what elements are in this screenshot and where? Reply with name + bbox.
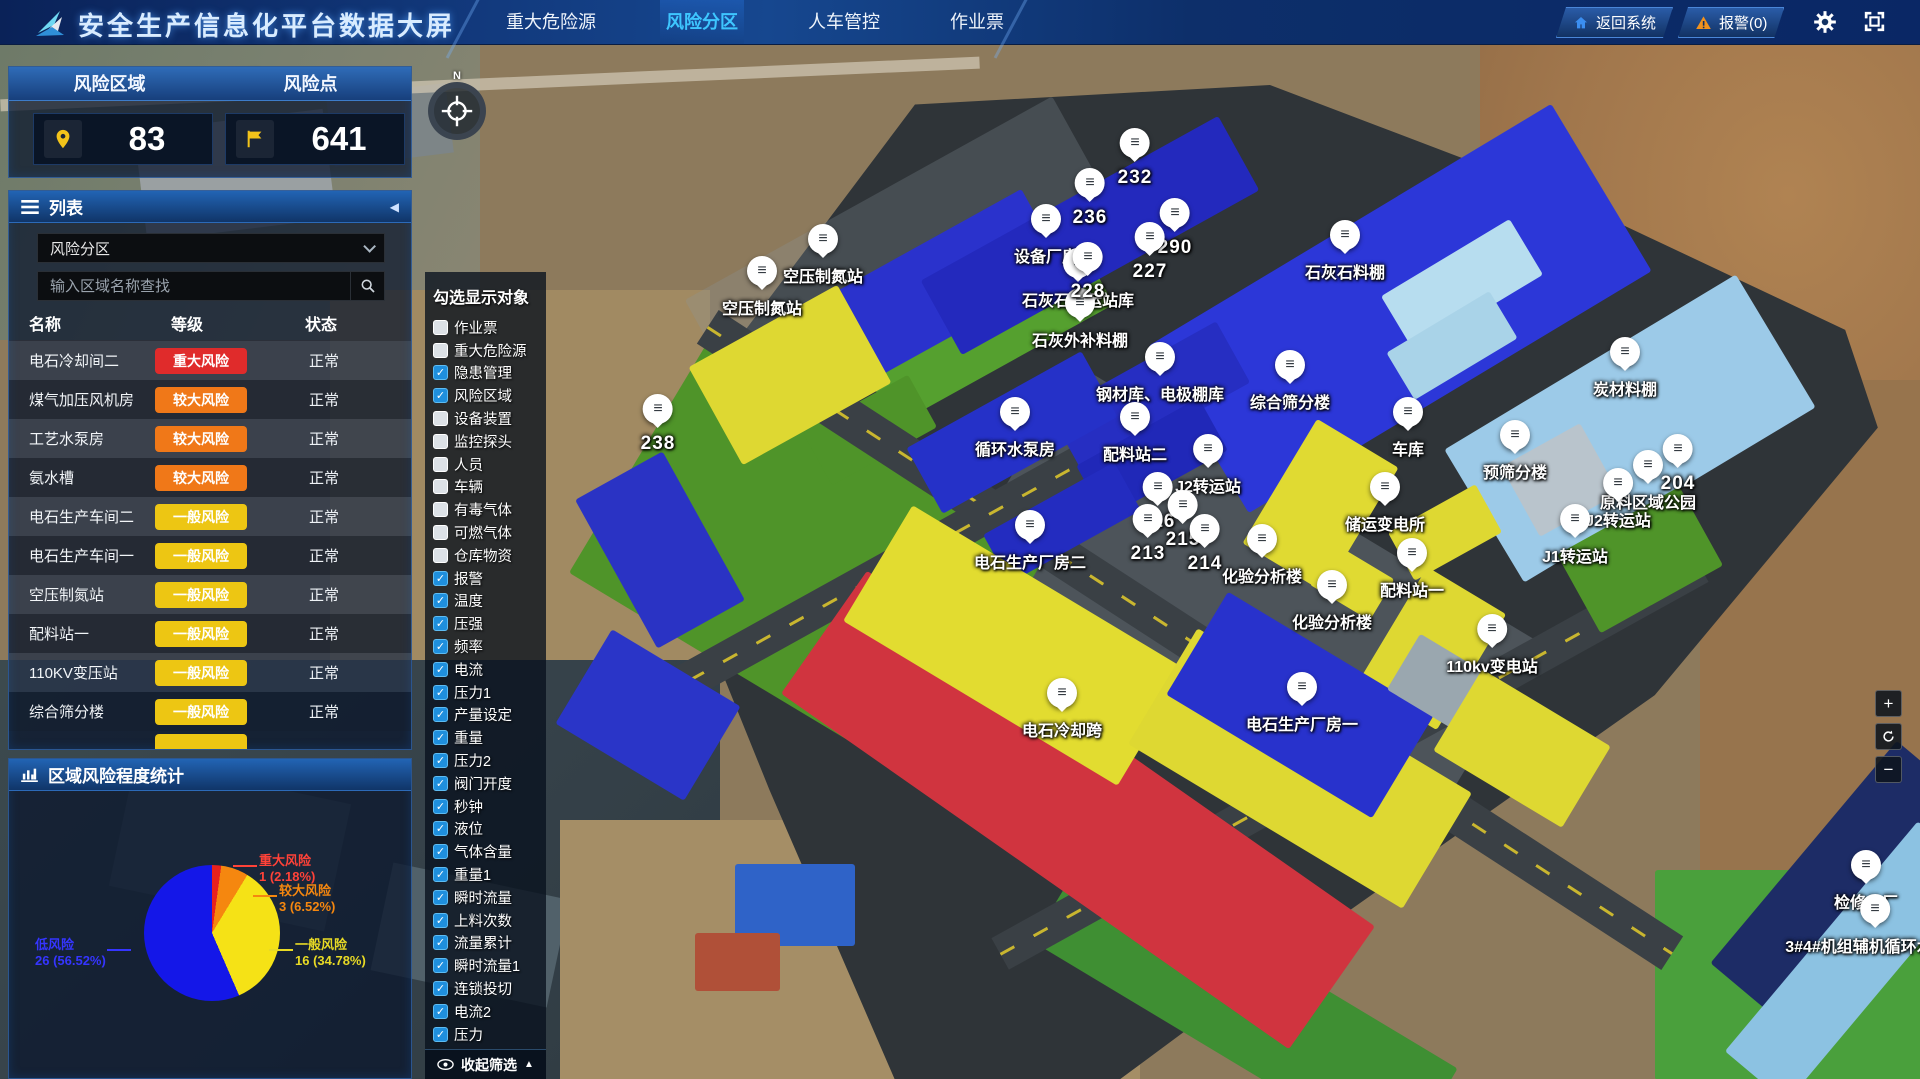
checkbox-checked[interactable]: ✓: [433, 1004, 448, 1019]
filter-item-label: 产量设定: [454, 704, 512, 725]
hamburger-icon: [21, 200, 39, 214]
search-icon[interactable]: [350, 272, 384, 300]
map-building-marker[interactable]: ≡3#4#机组辅机循环水泵房: [1785, 894, 1920, 957]
alarm-button[interactable]: 报警(0): [1678, 7, 1784, 38]
layer-stack-pin-icon: ≡: [1393, 397, 1423, 427]
zoom-out-button[interactable]: −: [1875, 756, 1902, 783]
checkbox-unchecked[interactable]: [433, 320, 448, 335]
reset-view-button[interactable]: [1875, 723, 1902, 750]
filter-panel-title: 勾选显示对象: [425, 272, 546, 316]
filter-item[interactable]: ✓连锁投切: [433, 977, 546, 1000]
filter-item-label: 有毒气体: [454, 499, 512, 520]
back-to-system-button[interactable]: 返回系统: [1556, 7, 1673, 38]
risk-degree-panel: 区域风险程度统计 重大风险1 (2.18%)较大风险3 (6.52%)一般风险1…: [8, 758, 412, 1079]
row-level-badge: 一般风险: [155, 699, 247, 725]
marker-label: 炭材料棚: [1593, 376, 1657, 400]
filter-item[interactable]: ✓重量: [433, 726, 546, 749]
pie-slice-label: 一般风险16 (34.78%): [295, 937, 366, 969]
panel-collapse-icon[interactable]: ◀: [390, 200, 399, 214]
risk-point-count: 641: [274, 120, 404, 158]
row-level-badge: 一般风险: [155, 504, 247, 530]
filter-item[interactable]: ✓秒钟: [433, 795, 546, 818]
checkbox-checked[interactable]: ✓: [433, 935, 448, 950]
map-number-marker[interactable]: ≡232: [1118, 128, 1153, 189]
layer-stack-pin-icon: ≡: [1120, 128, 1150, 158]
checkbox-unchecked[interactable]: [433, 457, 448, 472]
layer-stack-pin-icon: ≡: [1603, 468, 1633, 498]
marker-label: 储运变电所: [1345, 511, 1425, 535]
table-row[interactable]: 氨水槽较大风险正常: [9, 458, 411, 497]
pie-leader-line: [107, 949, 131, 951]
marker-label: 213: [1131, 543, 1166, 565]
checkbox-checked[interactable]: ✓: [433, 730, 448, 745]
map-building-marker[interactable]: ≡石灰石料棚: [1305, 220, 1385, 283]
row-name: 电石生产车间一: [29, 545, 134, 566]
filter-item[interactable]: 监控探头: [433, 430, 546, 453]
checkbox-checked[interactable]: ✓: [433, 707, 448, 722]
filter-item[interactable]: ✓隐患管理: [433, 362, 546, 385]
filter-item-label: 温度: [454, 590, 483, 611]
row-level-badge: 一般风险: [155, 660, 247, 686]
row-name: 空压制氮站: [29, 584, 104, 605]
filter-item-label: 风险区域: [454, 385, 512, 406]
clipped-row-badge: [155, 734, 247, 750]
risk-point-title: 风险点: [210, 67, 411, 100]
table-row[interactable]: 综合筛分楼一般风险正常: [9, 692, 411, 731]
row-status: 正常: [309, 467, 339, 488]
table-row[interactable]: 电石冷却间二重大风险正常: [9, 341, 411, 380]
table-row[interactable]: 电石生产车间一一般风险正常: [9, 536, 411, 575]
map-building-marker[interactable]: ≡综合筛分楼: [1250, 350, 1330, 413]
filter-item-label: 瞬时流量1: [454, 955, 520, 976]
map-building-marker[interactable]: ≡配料站一: [1380, 538, 1444, 601]
checkbox-checked[interactable]: ✓: [433, 388, 448, 403]
marker-label: J1转运站: [1542, 543, 1608, 567]
filter-item-label: 电流2: [454, 1001, 491, 1022]
filter-item[interactable]: ✓电流: [433, 658, 546, 681]
map-building-marker[interactable]: ≡化验分析楼: [1222, 524, 1302, 587]
row-name: 综合筛分楼: [29, 701, 104, 722]
filter-item[interactable]: 人员: [433, 453, 546, 476]
checkbox-unchecked[interactable]: [433, 525, 448, 540]
row-level-badge: 一般风险: [155, 543, 247, 569]
layer-stack-pin-icon: ≡: [1133, 504, 1163, 534]
zoom-in-button[interactable]: +: [1875, 690, 1902, 717]
category-dropdown-value: 风险分区: [50, 238, 110, 259]
column-name: 名称: [29, 311, 61, 335]
layer-stack-pin-icon: ≡: [1075, 168, 1105, 198]
marker-label: 车库: [1392, 436, 1424, 460]
marker-label: 204: [1661, 473, 1696, 495]
table-row[interactable]: 配料站一一般风险正常: [9, 614, 411, 653]
layer-stack-pin-icon: ≡: [1193, 434, 1223, 464]
map-building-marker[interactable]: ≡配料站二: [1103, 402, 1167, 465]
row-name: 电石冷却间二: [29, 350, 119, 371]
category-dropdown[interactable]: 风险分区: [37, 233, 385, 263]
marker-label: 石灰石料棚: [1305, 259, 1385, 283]
display-filter-panel: 勾选显示对象 作业票重大危险源✓隐患管理✓风险区域设备装置监控探头人员车辆有毒气…: [425, 272, 546, 1079]
filter-item-label: 隐患管理: [454, 362, 512, 383]
layer-stack-pin-icon: ≡: [1145, 342, 1175, 372]
risk-stats-header: 风险区域 风险点: [9, 67, 411, 101]
marker-label: 配料站一: [1380, 577, 1444, 601]
marker-label: 238: [641, 433, 676, 455]
filter-item[interactable]: 可燃气体: [433, 521, 546, 544]
layer-stack-pin-icon: ≡: [1851, 850, 1881, 880]
alarm-warning-icon: [1695, 15, 1712, 31]
nav-tab-1[interactable]: 风险分区: [660, 0, 744, 45]
filter-item-label: 仓库物资: [454, 545, 512, 566]
row-level-badge: 一般风险: [155, 582, 247, 608]
filter-item-label: 液位: [454, 818, 483, 839]
row-name: 工艺水泵房: [29, 428, 104, 449]
layer-stack-pin-icon: ≡: [1370, 472, 1400, 502]
checkbox-unchecked[interactable]: [433, 411, 448, 426]
marker-label: 232: [1118, 167, 1153, 189]
filter-item-label: 压强: [454, 613, 483, 634]
pie-leader-line: [269, 949, 293, 951]
checkbox-checked[interactable]: ✓: [433, 981, 448, 996]
filter-item[interactable]: 仓库物资: [433, 544, 546, 567]
filter-item-label: 连锁投切: [454, 978, 512, 999]
filter-item-label: 报警: [454, 568, 483, 589]
map-building-marker[interactable]: ≡循环水泵房: [975, 397, 1055, 460]
table-row[interactable]: 空压制氮站一般风险正常: [9, 575, 411, 614]
filter-item-label: 压力2: [454, 750, 491, 771]
layer-stack-pin-icon: ≡: [1330, 220, 1360, 250]
marker-label: 电石生产厂房一: [1246, 711, 1358, 735]
marker-label: 227: [1133, 261, 1168, 283]
collapse-filter-button[interactable]: 收起筛选 ▲: [425, 1049, 546, 1079]
checkbox-checked[interactable]: ✓: [433, 662, 448, 677]
filter-items-list: 作业票重大危险源✓隐患管理✓风险区域设备装置监控探头人员车辆有毒气体可燃气体仓库…: [425, 316, 546, 1046]
map-building-marker[interactable]: ≡钢材库、电极棚库: [1096, 342, 1224, 405]
search-box: [37, 271, 385, 301]
map-building-marker[interactable]: ≡电石冷却跨: [1022, 678, 1102, 741]
layer-stack-pin-icon: ≡: [1397, 538, 1427, 568]
risk-table-body: 电石冷却间二重大风险正常煤气加压风机房较大风险正常工艺水泵房较大风险正常氨水槽较…: [9, 341, 411, 731]
row-status: 正常: [309, 662, 339, 683]
filter-item-label: 上料次数: [454, 910, 512, 931]
filter-item[interactable]: ✓温度: [433, 590, 546, 613]
filter-item-label: 阀门开度: [454, 773, 512, 794]
layer-stack-pin-icon: ≡: [1190, 514, 1220, 544]
layer-stack-pin-icon: ≡: [1560, 504, 1590, 534]
table-header: 名称 等级 状态: [9, 311, 411, 339]
checkbox-unchecked[interactable]: [433, 479, 448, 494]
bar-chart-icon: [21, 767, 38, 782]
map-building-marker[interactable]: ≡电石生产厂房二: [974, 510, 1086, 573]
marker-label: 236: [1073, 207, 1108, 229]
checkbox-checked[interactable]: ✓: [433, 571, 448, 586]
risk-area-count: 83: [82, 120, 212, 158]
risk-area-stat: 83: [33, 113, 213, 165]
chart-panel-header: 区域风险程度统计: [9, 759, 411, 791]
filter-item-label: 车辆: [454, 476, 483, 497]
layer-stack-pin-icon: ≡: [1000, 397, 1030, 427]
filter-item[interactable]: ✓频率: [433, 635, 546, 658]
layer-stack-pin-icon: ≡: [1275, 350, 1305, 380]
row-status: 正常: [309, 584, 339, 605]
back-to-system-label: 返回系统: [1596, 12, 1656, 33]
filter-item-label: 作业票: [454, 317, 498, 338]
top-header: 安全生产信息化平台数据大屏 重大危险源风险分区人车管控作业票 返回系统 报警(0…: [0, 0, 1920, 45]
filter-item[interactable]: ✓瞬时流量1: [433, 954, 546, 977]
nav-tab-3[interactable]: 作业票: [944, 0, 1010, 45]
checkbox-checked[interactable]: ✓: [433, 958, 448, 973]
column-status: 状态: [305, 311, 337, 335]
row-name: 氨水槽: [29, 467, 74, 488]
checkbox-unchecked[interactable]: [433, 502, 448, 517]
checkbox-checked[interactable]: ✓: [433, 821, 448, 836]
filter-item-label: 监控探头: [454, 431, 512, 452]
checkbox-checked[interactable]: ✓: [433, 365, 448, 380]
layer-stack-pin-icon: ≡: [1500, 420, 1530, 450]
checkbox-checked[interactable]: ✓: [433, 776, 448, 791]
filter-item[interactable]: ✓报警: [433, 567, 546, 590]
row-name: 配料站一: [29, 623, 89, 644]
marker-label: 电石生产厂房二: [974, 549, 1086, 573]
layer-stack-pin-icon: ≡: [643, 394, 673, 424]
row-level-badge: 较大风险: [155, 387, 247, 413]
row-status: 正常: [309, 623, 339, 644]
layer-stack-pin-icon: ≡: [1860, 894, 1890, 924]
table-row[interactable]: 工艺水泵房较大风险正常: [9, 419, 411, 458]
marker-label: 配料站二: [1103, 441, 1167, 465]
risk-list-panel: 列表 ◀ 风险分区 名称 等级 状态 电石冷却间二重大风险正常煤气加压风机房较大…: [8, 190, 412, 750]
map-number-marker[interactable]: ≡213: [1131, 504, 1166, 565]
risk-area-title: 风险区域: [9, 67, 210, 100]
layer-stack-pin-icon: ≡: [1047, 678, 1077, 708]
chevron-up-icon: ▲: [524, 1059, 534, 1070]
marker-label: 214: [1188, 553, 1223, 575]
dashboard-root: 西环路 ≡空压制氮站≡空压制氮站≡设备厂房≡石灰石转运站库≡石灰外补料棚≡石灰石…: [0, 0, 1920, 1079]
checkbox-unchecked[interactable]: [433, 343, 448, 358]
row-status: 正常: [309, 350, 339, 371]
checkbox-checked[interactable]: ✓: [433, 1027, 448, 1042]
checkbox-checked[interactable]: ✓: [433, 913, 448, 928]
row-status: 正常: [309, 506, 339, 527]
filter-item[interactable]: ✓流量累计: [433, 932, 546, 955]
layer-stack-pin-icon: ≡: [808, 224, 838, 254]
nav-tab-2[interactable]: 人车管控: [802, 0, 886, 45]
map-building-marker[interactable]: ≡预筛分楼: [1483, 420, 1547, 483]
marker-label: 228: [1071, 281, 1106, 303]
row-name: 110KV变压站: [29, 662, 118, 683]
filter-item-label: 人员: [454, 454, 483, 475]
layer-stack-pin-icon: ≡: [1015, 510, 1045, 540]
checkbox-checked[interactable]: ✓: [433, 685, 448, 700]
flag-icon: [236, 120, 274, 158]
filter-item-label: 重量1: [454, 864, 491, 885]
map-building-marker[interactable]: ≡空压制氮站: [722, 256, 802, 319]
filter-item[interactable]: ✓产量设定: [433, 704, 546, 727]
filter-item[interactable]: 设备装置: [433, 407, 546, 430]
filter-item[interactable]: ✓瞬时流量: [433, 886, 546, 909]
filter-item[interactable]: ✓气体含量: [433, 840, 546, 863]
map-zoom-controls: + −: [1875, 690, 1902, 783]
pie-slice-label: 重大风险1 (2.18%): [259, 853, 315, 885]
marker-label: 电石冷却跨: [1022, 717, 1102, 741]
map-number-marker[interactable]: ≡204: [1661, 434, 1696, 495]
filter-item[interactable]: ✓上料次数: [433, 909, 546, 932]
layer-stack-pin-icon: ≡: [1120, 402, 1150, 432]
map-pin-icon: [44, 120, 82, 158]
list-panel-header: 列表 ◀: [9, 191, 411, 223]
map-number-marker[interactable]: ≡227: [1133, 222, 1168, 283]
map-building-marker[interactable]: ≡储运变电所: [1345, 472, 1425, 535]
checkbox-unchecked[interactable]: [433, 548, 448, 563]
marker-label: 化验分析楼: [1292, 609, 1372, 633]
filter-item-label: 可燃气体: [454, 522, 512, 543]
checkbox-checked[interactable]: ✓: [433, 890, 448, 905]
pie-leader-line: [233, 865, 257, 867]
layer-stack-pin-icon: ≡: [1477, 614, 1507, 644]
eye-icon: [437, 1059, 454, 1070]
checkbox-checked[interactable]: ✓: [433, 799, 448, 814]
layer-stack-pin-icon: ≡: [1663, 434, 1693, 464]
filter-item-label: 压力: [454, 1024, 483, 1045]
filter-item-label: 电流: [454, 659, 483, 680]
filter-item[interactable]: ✓压力: [433, 1023, 546, 1046]
filter-item[interactable]: ✓重量1: [433, 863, 546, 886]
map-number-marker[interactable]: ≡228: [1071, 242, 1106, 303]
row-level-badge: 一般风险: [155, 621, 247, 647]
row-level-badge: 重大风险: [155, 348, 247, 374]
marker-label: 3#4#机组辅机循环水泵房: [1785, 933, 1920, 957]
filter-item[interactable]: ✓阀门开度: [433, 772, 546, 795]
row-status: 正常: [309, 389, 339, 410]
checkbox-checked[interactable]: ✓: [433, 753, 448, 768]
filter-item-label: 气体含量: [454, 841, 512, 862]
filter-item[interactable]: ✓风险区域: [433, 384, 546, 407]
filter-item[interactable]: ✓压力1: [433, 681, 546, 704]
row-status: 正常: [309, 545, 339, 566]
marker-label: 空压制氮站: [722, 295, 802, 319]
marker-label: 预筛分楼: [1483, 459, 1547, 483]
checkbox-checked[interactable]: ✓: [433, 593, 448, 608]
filter-item[interactable]: ✓压力2: [433, 749, 546, 772]
settings-gear-icon[interactable]: [1812, 9, 1840, 37]
filter-item[interactable]: 重大危险源: [433, 339, 546, 362]
filter-item[interactable]: ✓电流2: [433, 1000, 546, 1023]
map-building-marker[interactable]: ≡110kv变电站: [1446, 614, 1538, 677]
layer-stack-pin-icon: ≡: [1135, 222, 1165, 252]
filter-item-label: 重大危险源: [454, 340, 527, 361]
filter-item-label: 设备装置: [454, 408, 512, 429]
layer-stack-pin-icon: ≡: [1610, 337, 1640, 367]
map-number-marker[interactable]: ≡238: [641, 394, 676, 455]
filter-item[interactable]: 有毒气体: [433, 498, 546, 521]
marker-label: 综合筛分楼: [1250, 389, 1330, 413]
fullscreen-icon[interactable]: [1862, 9, 1890, 37]
map-building-marker[interactable]: ≡炭材料棚: [1593, 337, 1657, 400]
map-number-marker[interactable]: ≡236: [1073, 168, 1108, 229]
filter-item[interactable]: 车辆: [433, 476, 546, 499]
checkbox-checked[interactable]: ✓: [433, 616, 448, 631]
marker-label: 循环水泵房: [975, 436, 1055, 460]
filter-item-label: 流量累计: [454, 932, 512, 953]
checkbox-checked[interactable]: ✓: [433, 639, 448, 654]
home-icon: [1573, 15, 1589, 31]
table-row[interactable]: 电石生产车间二一般风险正常: [9, 497, 411, 536]
pie-slice-label: 较大风险3 (6.52%): [279, 883, 335, 915]
layer-stack-pin-icon: ≡: [747, 256, 777, 286]
filter-item-label: 秒钟: [454, 796, 483, 817]
table-row[interactable]: 煤气加压风机房较大风险正常: [9, 380, 411, 419]
filter-item[interactable]: 作业票: [433, 316, 546, 339]
row-status: 正常: [309, 701, 339, 722]
layer-stack-pin-icon: ≡: [1073, 242, 1103, 272]
row-level-badge: 较大风险: [155, 465, 247, 491]
risk-point-stat: 641: [225, 113, 405, 165]
map-building-marker[interactable]: ≡电石生产厂房一: [1246, 672, 1358, 735]
chart-panel-title: 区域风险程度统计: [48, 762, 184, 787]
column-level: 等级: [171, 311, 203, 335]
main-nav: 重大危险源风险分区人车管控作业票: [500, 0, 1010, 45]
row-status: 正常: [309, 428, 339, 449]
filter-item-label: 压力1: [454, 682, 491, 703]
layer-stack-pin-icon: ≡: [1031, 204, 1061, 234]
filter-item[interactable]: ✓压强: [433, 612, 546, 635]
filter-item-label: 瞬时流量: [454, 887, 512, 908]
platform-logo-icon: [34, 7, 68, 39]
map-building-marker[interactable]: ≡J2转运站: [1175, 434, 1241, 497]
alarm-label: 报警(0): [1719, 12, 1767, 33]
row-level-badge: 较大风险: [155, 426, 247, 452]
row-name: 电石生产车间二: [29, 506, 134, 527]
filter-item-label: 频率: [454, 636, 483, 657]
checkbox-checked[interactable]: ✓: [433, 867, 448, 882]
checkbox-checked[interactable]: ✓: [433, 844, 448, 859]
map-building-marker[interactable]: ≡化验分析楼: [1292, 570, 1372, 633]
search-input[interactable]: [38, 272, 350, 300]
row-name: 煤气加压风机房: [29, 389, 134, 410]
chevron-down-icon: [363, 240, 376, 253]
filter-item-label: 重量: [454, 727, 483, 748]
layer-stack-pin-icon: ≡: [1317, 570, 1347, 600]
map-number-marker[interactable]: ≡214: [1188, 514, 1223, 575]
filter-item[interactable]: ✓液位: [433, 818, 546, 841]
collapse-filter-label: 收起筛选: [461, 1055, 517, 1075]
checkbox-unchecked[interactable]: [433, 434, 448, 449]
pie-leader-line: [253, 895, 277, 897]
page-title: 安全生产信息化平台数据大屏: [78, 6, 455, 43]
map-building-marker[interactable]: ≡J1转运站: [1542, 504, 1608, 567]
table-row[interactable]: 110KV变压站一般风险正常: [9, 653, 411, 692]
marker-label: 化验分析楼: [1222, 563, 1302, 587]
marker-label: 110kv变电站: [1446, 653, 1538, 677]
risk-stats-panel: 风险区域 风险点 83 641: [8, 66, 412, 178]
list-panel-title: 列表: [49, 194, 83, 219]
pie-slice-label: 低风险26 (56.52%): [35, 937, 106, 969]
layer-stack-pin-icon: ≡: [1247, 524, 1277, 554]
map-building-marker[interactable]: ≡车库: [1392, 397, 1424, 460]
layer-stack-pin-icon: ≡: [1287, 672, 1317, 702]
risk-pie-chart: [144, 865, 280, 1001]
nav-tab-0[interactable]: 重大危险源: [500, 0, 602, 45]
